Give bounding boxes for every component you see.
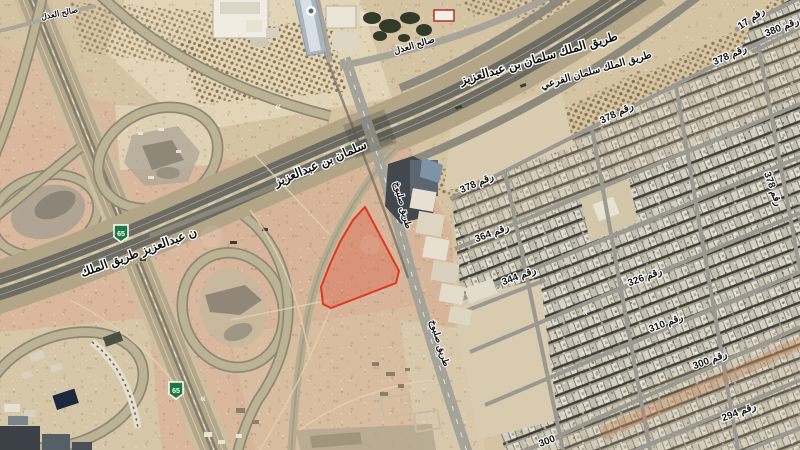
svg-text:65: 65 xyxy=(117,231,125,238)
svg-text:«: « xyxy=(275,101,281,113)
svg-text:«: « xyxy=(582,307,588,319)
svg-text:65: 65 xyxy=(172,388,180,395)
svg-text:«: « xyxy=(200,393,206,405)
